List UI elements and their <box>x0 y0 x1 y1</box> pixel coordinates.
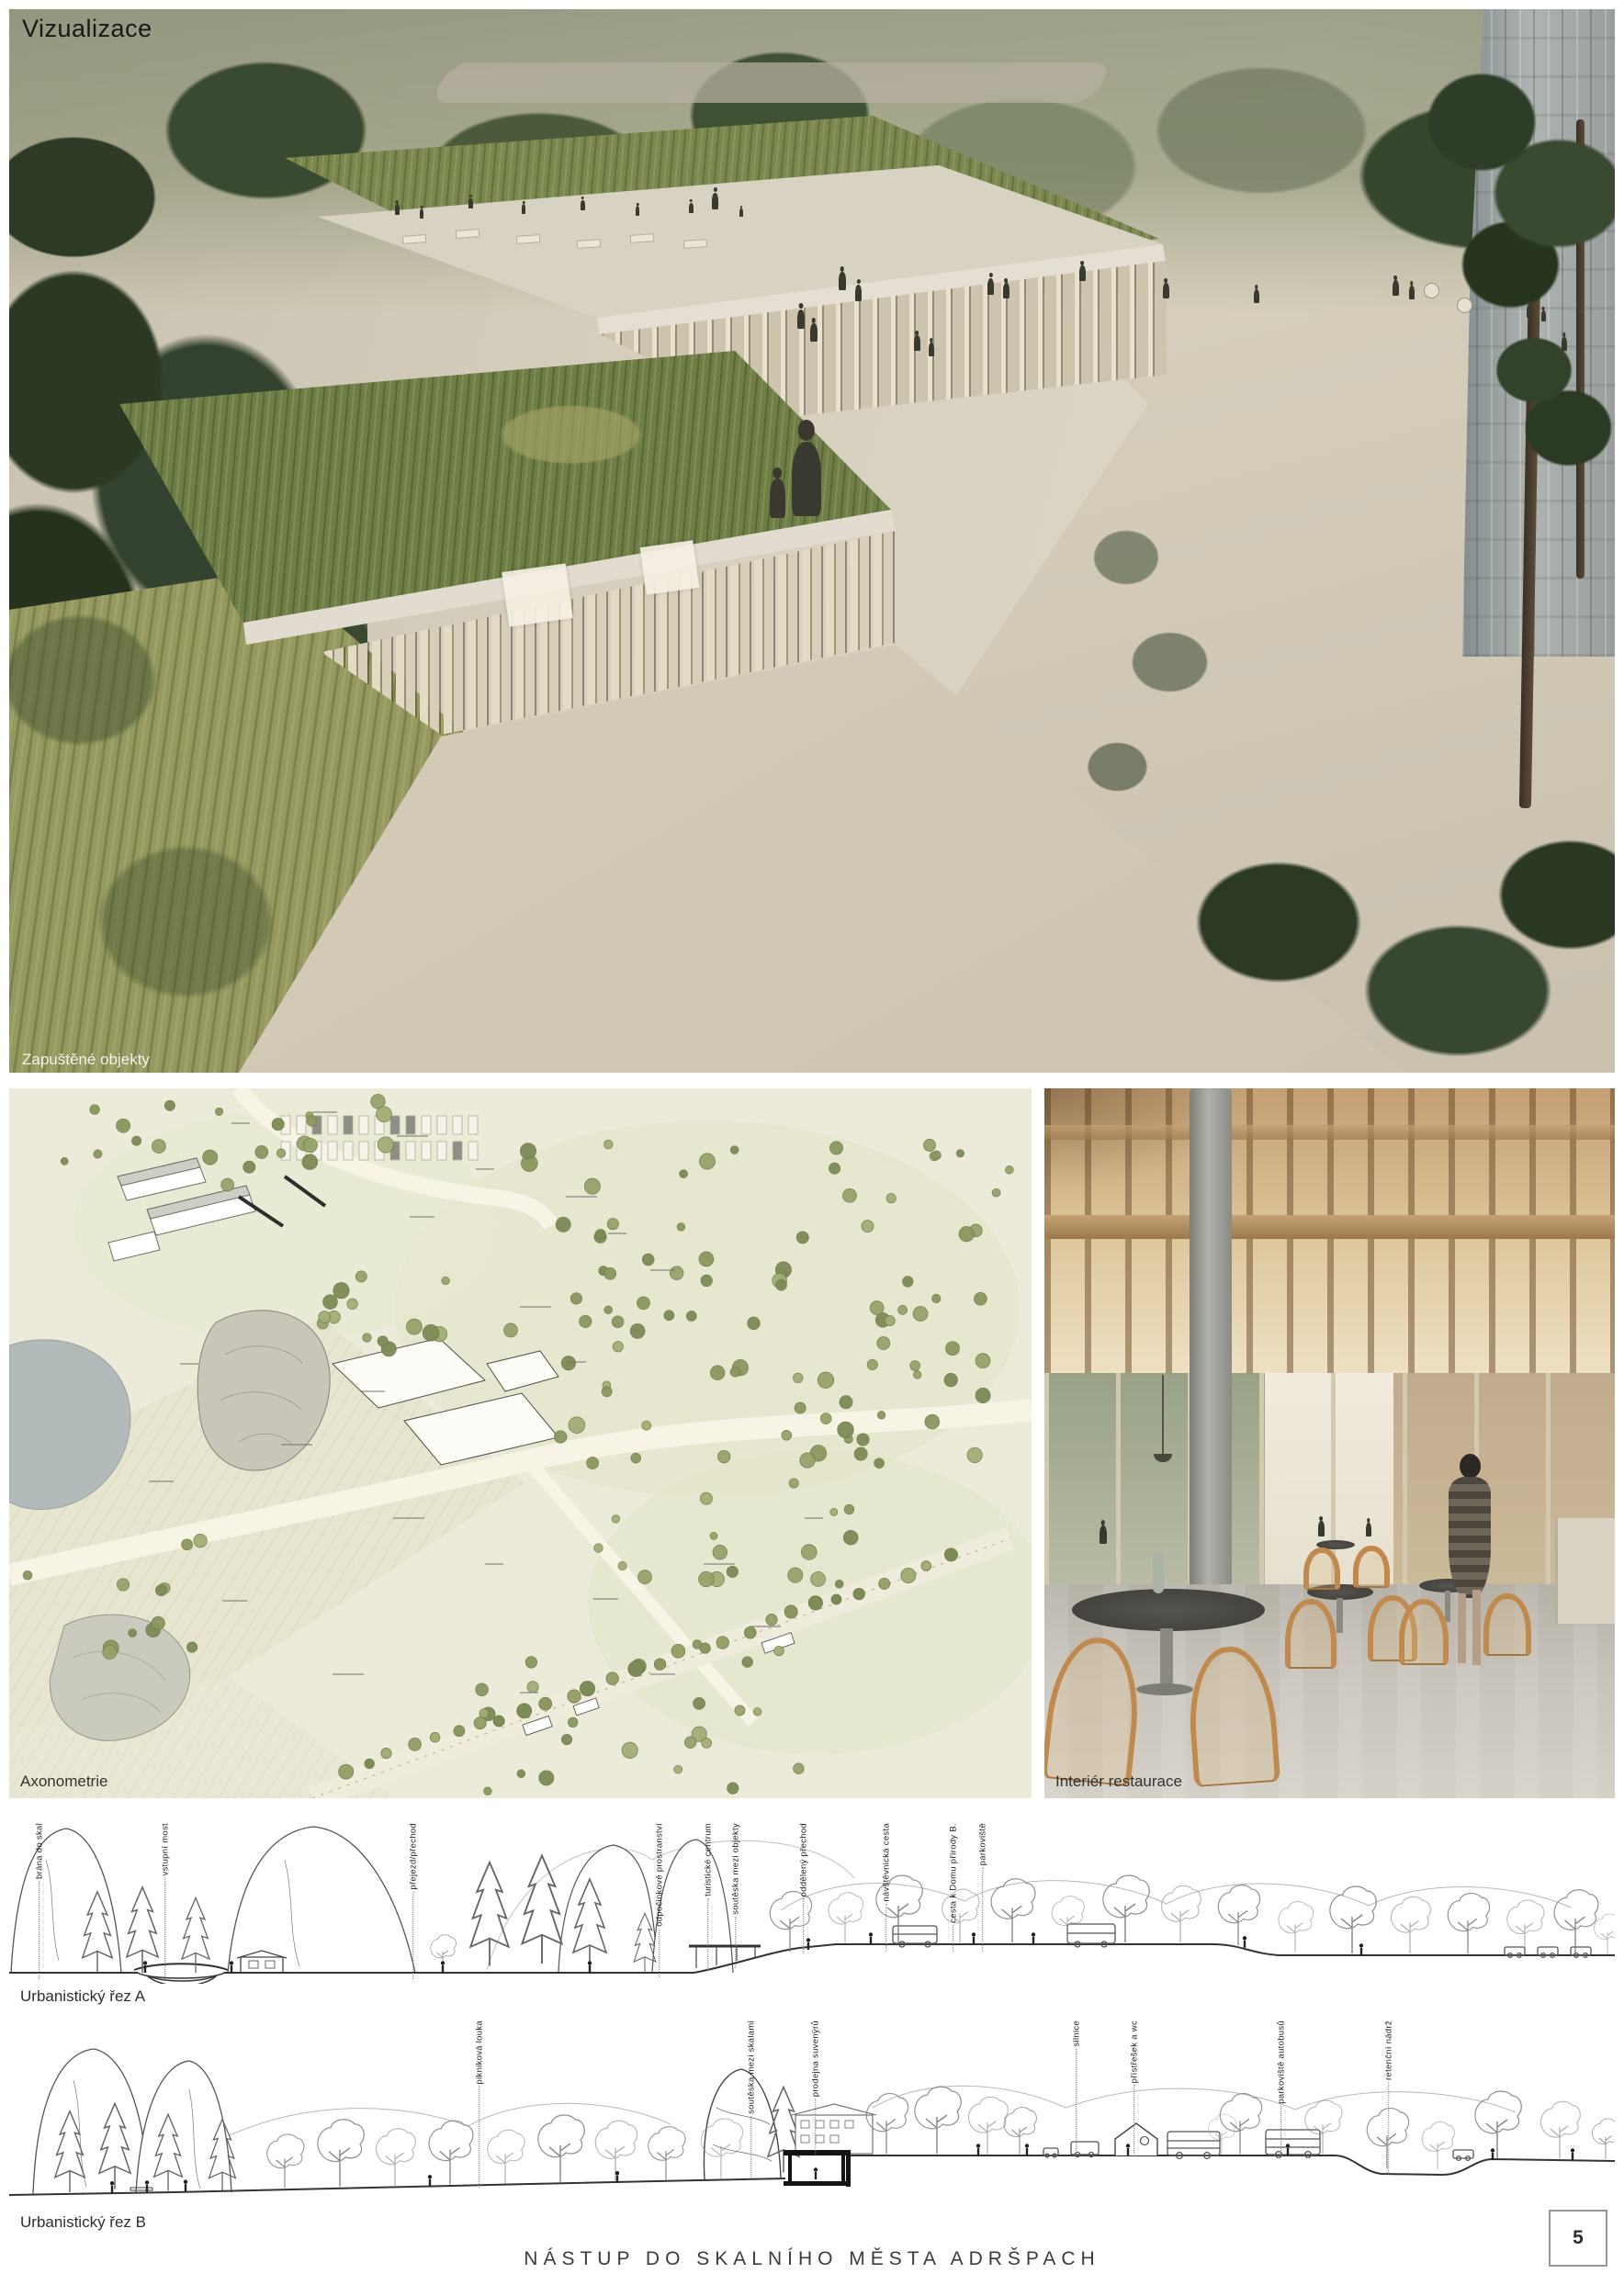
interior-render: Interiér restaurace <box>1044 1088 1615 1798</box>
section-label-text: prodejna suvenýrů <box>811 2020 820 2097</box>
person-silhouette <box>581 200 585 210</box>
section-label-text: přejezd/přechod <box>409 1823 418 1890</box>
section-label: cesta k Domu přírody B. <box>949 1823 958 1952</box>
person-silhouette <box>810 323 818 342</box>
section-label: soutěska mezi objekty <box>731 1823 740 1968</box>
label-leader-line <box>1281 2106 1282 2156</box>
person-silhouette <box>792 442 821 516</box>
person-silhouette <box>929 343 934 356</box>
section-label-text: retenční nádrž <box>1384 2020 1393 2080</box>
urban-section-b: pikniková loukasoutěska mezi skalamiprod… <box>9 2020 1615 2209</box>
axonometric-plan: Axonometrie <box>9 1088 1032 1798</box>
section-label: návštěvnická cesta <box>882 1823 891 1952</box>
section-label-text: soutěska mezi skalami <box>747 2020 756 2114</box>
section-a-labels: brána do skalvstupní mostpřejezd/přechod… <box>9 1823 1615 2007</box>
person-silhouette <box>636 206 639 216</box>
presentation-board: Vizualizace Zapuštěné objekty <box>0 0 1624 2296</box>
visualization-caption: Zapuštěné objekty <box>22 1051 150 1069</box>
section-b-caption: Urbanistický řez B <box>20 2213 146 2232</box>
section-label-text: parkoviště <box>978 1823 987 1865</box>
person-silhouette <box>855 285 862 301</box>
person-silhouette <box>395 204 400 215</box>
road-top <box>429 62 1113 103</box>
section-b-labels: pikniková loukasoutěska mezi skalamiprod… <box>9 2020 1615 2209</box>
person-silhouette <box>1100 1525 1107 1544</box>
person-silhouette <box>712 193 718 209</box>
label-leader-line <box>953 1925 954 1952</box>
person-leg <box>1458 1593 1466 1663</box>
person-silhouette <box>1527 305 1531 318</box>
urban-section-a: brána do skalvstupní mostpřejezd/přechod… <box>9 1823 1615 2007</box>
section-label-text: oddělený přechod <box>799 1823 808 1896</box>
table-stem <box>1160 1628 1173 1691</box>
label-leader-line <box>165 1877 166 1979</box>
round-table <box>1072 1589 1265 1631</box>
page-number-box: 5 <box>1549 2210 1607 2267</box>
person-silhouette <box>420 208 423 219</box>
section-label: pikniková louka <box>475 2020 484 2188</box>
walking-person <box>1447 1454 1494 1674</box>
section-label: přejezd/přechod <box>409 1823 418 1979</box>
section-label: oddělený přechod <box>799 1823 808 1953</box>
person-silhouette <box>468 198 473 208</box>
person-silhouette <box>1163 283 1169 298</box>
terrace-bench <box>630 233 655 243</box>
table-stem <box>1336 1598 1343 1633</box>
section-label-text: návštěvnická cesta <box>882 1823 891 1902</box>
label-leader-line <box>804 1898 805 1953</box>
section-label-text: turistické centrum <box>704 1823 713 1896</box>
person-silhouette <box>689 203 694 213</box>
person-silhouette <box>1541 310 1546 321</box>
label-leader-line <box>886 1904 887 1952</box>
person-silhouette <box>770 478 785 518</box>
interior-caption: Interiér restaurace <box>1055 1773 1182 1791</box>
terrace-bench <box>516 234 541 244</box>
section-label-text: parkoviště autobusů <box>1277 2020 1286 2104</box>
section-label: turistické centrum <box>704 1823 713 1970</box>
person-silhouette <box>1409 286 1415 299</box>
wooden-chair <box>1353 1546 1390 1588</box>
person-silhouette <box>1366 1523 1371 1536</box>
terrace-bench <box>456 229 480 239</box>
pine-canopy-right-low <box>1479 312 1615 478</box>
board-title: NÁSTUP DO SKALNÍHO MĚSTA ADRŠPACH <box>0 2248 1624 2270</box>
label-leader-line <box>1389 2082 1390 2175</box>
ceiling-beam <box>1044 1125 1615 1140</box>
person-silhouette <box>1079 265 1086 281</box>
section-label-text: soutěska mezi objekty <box>731 1823 740 1915</box>
label-leader-line <box>816 2099 817 2155</box>
label-leader-line <box>708 1898 709 1970</box>
section-label: vstupní most <box>161 1823 170 1979</box>
section-label-text: odpočinkové prostranství <box>655 1823 664 1927</box>
wooden-chair <box>1303 1548 1340 1590</box>
table-base <box>1136 1683 1193 1695</box>
section-label: přístřešek a wc <box>1130 2020 1139 2156</box>
section-label-text: pikniková louka <box>475 2020 484 2084</box>
person-silhouette <box>987 278 994 295</box>
label-leader-line <box>1077 2049 1077 2157</box>
section-label-text: vstupní most <box>161 1823 170 1875</box>
label-leader-line <box>413 1892 414 1979</box>
section-label: parkoviště autobusů <box>1277 2020 1286 2156</box>
section-label: brána do skal <box>35 1823 44 1979</box>
label-leader-line <box>736 1917 737 1968</box>
person-leg <box>1472 1590 1481 1665</box>
pine-canopy-right <box>1424 37 1615 321</box>
label-leader-line <box>660 1929 660 1977</box>
ceiling-main-beam <box>1044 1215 1615 1239</box>
section-label: parkoviště <box>978 1823 987 1952</box>
person-silhouette <box>797 310 805 329</box>
person-silhouette <box>739 208 743 217</box>
cafe-table <box>1424 283 1439 298</box>
section-label: soutěska mezi skalami <box>747 2020 756 2180</box>
person-silhouette <box>839 272 846 290</box>
label-leader-line <box>1134 2085 1135 2156</box>
forest-bottom-right <box>1167 799 1615 1073</box>
cafe-table <box>1457 298 1472 313</box>
visualization-heading: Vizualizace <box>22 15 152 43</box>
interior-glimpse <box>502 563 573 626</box>
section-label-text: brána do skal <box>35 1823 44 1879</box>
vase <box>1153 1553 1164 1593</box>
page-number: 5 <box>1573 2227 1584 2249</box>
person-dress <box>1449 1477 1491 1598</box>
label-leader-line <box>479 2086 480 2188</box>
section-label: prodejna suvenýrů <box>811 2020 820 2155</box>
section-label-text: silnice <box>1072 2020 1081 2047</box>
person-silhouette <box>1562 337 1567 351</box>
section-label-text: přístřešek a wc <box>1130 2020 1139 2083</box>
terrace-bench <box>577 239 602 249</box>
bar-counter <box>1555 1518 1615 1624</box>
label-leader-line <box>39 1881 40 1979</box>
pendant-lamp <box>1162 1375 1164 1456</box>
section-label-text: cesta k Domu přírody B. <box>949 1823 958 1923</box>
person-silhouette <box>1003 283 1009 298</box>
terrace-bench <box>683 239 708 249</box>
person-silhouette <box>914 335 920 351</box>
section-label: retenční nádrž <box>1384 2020 1393 2175</box>
axonometry-caption: Axonometrie <box>20 1773 107 1791</box>
section-label: odpočinkové prostranství <box>655 1823 664 1977</box>
section-a-caption: Urbanistický řez A <box>20 1987 145 2006</box>
person-silhouette <box>1254 289 1259 303</box>
label-leader-line <box>751 2116 752 2180</box>
person-silhouette <box>522 204 525 214</box>
interior-glimpse <box>640 540 700 595</box>
person-silhouette <box>1393 280 1399 296</box>
label-leader-line <box>983 1867 984 1952</box>
section-label: silnice <box>1072 2020 1081 2156</box>
visualization-render: Vizualizace Zapuštěné objekty <box>9 9 1615 1073</box>
terrace-bench <box>402 234 427 244</box>
person-head <box>1460 1454 1481 1479</box>
person-silhouette <box>1318 1521 1325 1536</box>
axonometric-plan-drawing <box>9 1088 1032 1798</box>
